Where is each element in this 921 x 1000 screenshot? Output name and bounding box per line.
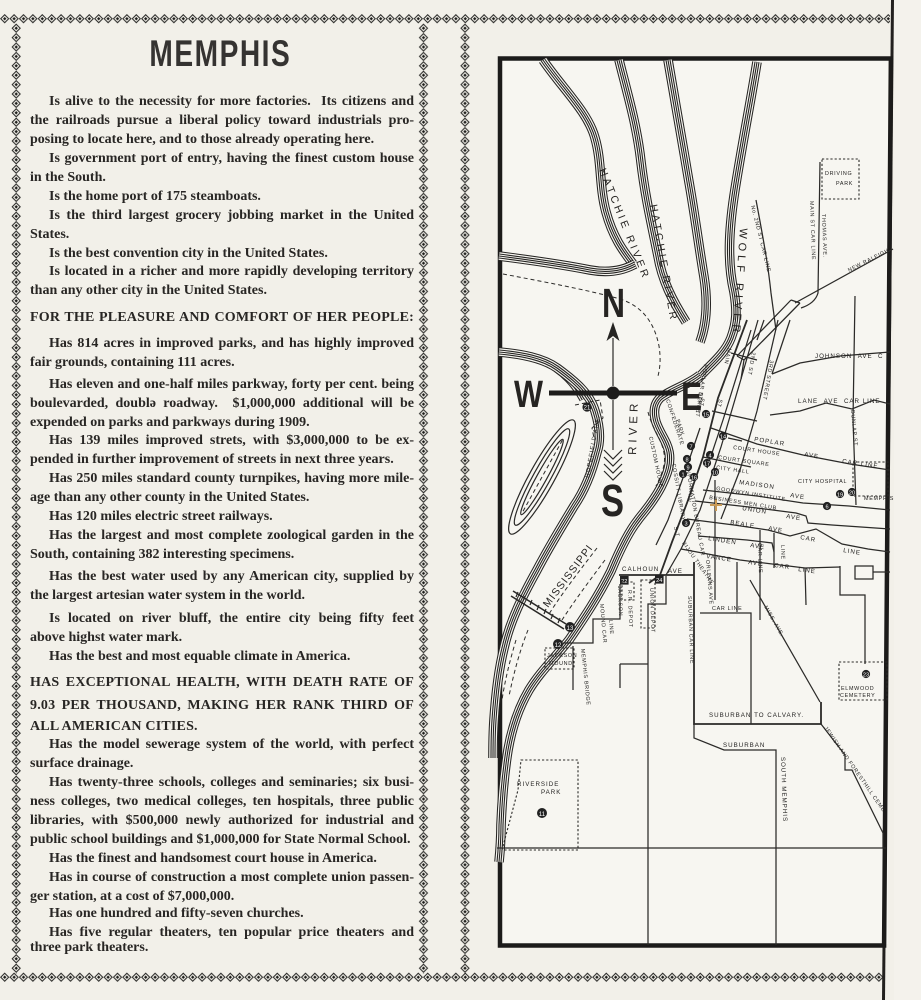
svg-text:S: S <box>601 475 624 526</box>
svg-text:LINDEN: LINDEN <box>708 535 737 546</box>
svg-text:AVE: AVE <box>768 525 784 534</box>
svg-text:LINE: LINE <box>607 620 614 635</box>
svg-text:JACKSON: JACKSON <box>547 653 577 659</box>
svg-text:RIVERSIDE: RIVERSIDE <box>517 781 559 788</box>
svg-text:SOUTH MEMPHIS: SOUTH MEMPHIS <box>779 757 788 822</box>
svg-text:19: 19 <box>837 493 843 499</box>
svg-text:MADISON: MADISON <box>739 479 776 491</box>
svg-text:AVE: AVE <box>786 513 802 522</box>
svg-text:7: 7 <box>689 445 692 451</box>
svg-text:13: 13 <box>567 626 574 632</box>
svg-text:PARK: PARK <box>541 789 561 796</box>
svg-text:ELMWOOD: ELMWOOD <box>841 686 874 692</box>
svg-text:DRIVING: DRIVING <box>825 171 852 177</box>
svg-text:MAIN ST CAR LINE: MAIN ST CAR LINE <box>808 201 816 261</box>
svg-text:MEMPHIS BRIDGE: MEMPHIS BRIDGE <box>579 649 591 706</box>
svg-text:9: 9 <box>686 466 689 472</box>
svg-text:AVE: AVE <box>804 451 820 460</box>
svg-text:SUBURBAN TO CALVARY.: SUBURBAN TO CALVARY. <box>709 712 804 719</box>
svg-text:14: 14 <box>720 435 726 441</box>
svg-text:NEW RALEIGH: NEW RALEIGH <box>847 248 890 274</box>
svg-text:No. 2ND ST CAR LINE: No. 2ND ST CAR LINE <box>749 205 771 273</box>
svg-text:ST: ST <box>715 399 723 408</box>
svg-text:6: 6 <box>825 505 828 511</box>
svg-text:LINE: LINE <box>843 547 862 557</box>
svg-text:JEWISH AND FORESTHILL CEME: JEWISH AND FORESTHILL CEME <box>822 726 886 814</box>
svg-text:HATCHIE RIVER: HATCHIE RIVER <box>647 203 680 323</box>
svg-text:15: 15 <box>703 413 709 419</box>
svg-text:R.R. DEPOT: R.R. DEPOT <box>626 590 633 628</box>
svg-text:8: 8 <box>685 458 688 464</box>
svg-text:3RD STREET: 3RD STREET <box>761 360 774 401</box>
svg-text:MOUND: MOUND <box>549 661 573 667</box>
svg-text:POPLAR: POPLAR <box>754 436 786 448</box>
svg-text:CAR LINE: CAR LINE <box>712 606 742 612</box>
svg-text:10: 10 <box>712 471 718 477</box>
svg-text:4: 4 <box>708 454 711 460</box>
svg-text:PARK: PARK <box>836 181 853 187</box>
svg-text:AVE: AVE <box>668 568 683 575</box>
svg-text:SUBURBAN CAR LINE: SUBURBAN CAR LINE <box>686 596 694 664</box>
svg-text:N: N <box>602 280 625 326</box>
svg-text:AVE: AVE <box>790 492 806 501</box>
svg-text:JOHNSON AVE C: JOHNSON AVE C <box>815 353 884 360</box>
svg-text:17: 17 <box>704 462 710 468</box>
svg-text:RIVER: RIVER <box>627 400 641 456</box>
svg-text:W: W <box>514 374 543 416</box>
svg-text:MOUND CAR: MOUND CAR <box>598 604 607 644</box>
svg-text:16: 16 <box>691 476 697 482</box>
svg-text:LANE AVE CAR LINE: LANE AVE CAR LINE <box>798 398 881 405</box>
svg-text:CAR LINE: CAR LINE <box>842 458 879 470</box>
svg-text:CITY HOSPITAL: CITY HOSPITAL <box>798 479 847 485</box>
svg-text:ORLEANS AVE: ORLEANS AVE <box>704 560 714 605</box>
svg-text:LINE: LINE <box>779 545 786 560</box>
svg-text:24: 24 <box>656 578 662 584</box>
svg-text:MISS. AVE.: MISS. AVE. <box>762 605 785 638</box>
svg-text:3: 3 <box>684 522 687 528</box>
svg-text:23: 23 <box>863 673 869 679</box>
svg-text:S T: S T <box>672 526 680 538</box>
svg-text:20: 20 <box>849 491 855 497</box>
svg-text:CALHOUN: CALHOUN <box>622 566 659 573</box>
svg-text:UNION DEPOT: UNION DEPOT <box>648 588 656 633</box>
svg-text:11: 11 <box>539 812 546 818</box>
svg-text:CEMETERY: CEMETERY <box>840 693 875 699</box>
svg-text:BEALE: BEALE <box>730 519 756 530</box>
svg-text:21: 21 <box>584 406 591 412</box>
svg-text:1: 1 <box>681 473 684 479</box>
svg-text:DUNLAP ST: DUNLAP ST <box>849 410 858 447</box>
svg-text:CITY HALL: CITY HALL <box>716 465 750 476</box>
svg-text:CAR: CAR <box>800 534 817 544</box>
svg-text:LINE: LINE <box>798 566 817 575</box>
svg-text:SUBURBAN: SUBURBAN <box>723 742 765 749</box>
svg-text:THOMAS AVE.: THOMAS AVE. <box>820 214 828 258</box>
svg-text:CAR: CAR <box>774 562 791 571</box>
svg-text:MEMPHIS: MEMPHIS <box>864 496 894 502</box>
svg-text:COURT HOUSE: COURT HOUSE <box>733 445 781 458</box>
